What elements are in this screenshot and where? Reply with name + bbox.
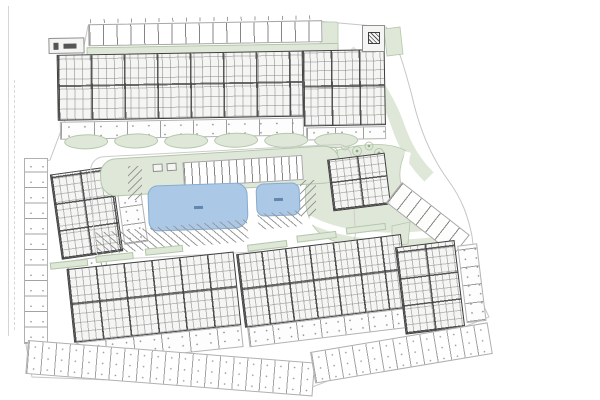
site-plan-canvas [0, 0, 600, 400]
west-plot-strip [24, 158, 48, 344]
green-strip [145, 245, 184, 256]
utility-kiosk [362, 25, 385, 52]
north-block-east-wing [302, 49, 386, 126]
frame-line-left [8, 6, 9, 336]
dimension-line-left [14, 80, 15, 330]
clubhouse-building [327, 153, 391, 212]
hatched-parking-east [300, 180, 316, 216]
green-strip [95, 252, 134, 263]
green-strip [296, 231, 337, 243]
hatched-parking-west [128, 166, 142, 200]
south-complex [226, 215, 418, 346]
green-strip [346, 223, 387, 235]
hedge-mound [164, 133, 208, 149]
hedge-mound [114, 133, 158, 149]
hedge-mound [64, 134, 108, 150]
entrance-kiosk [48, 37, 84, 54]
sign-box [152, 164, 162, 173]
north-block-building [57, 50, 308, 120]
north-complex [46, 12, 393, 158]
kiosk-room [53, 43, 58, 50]
southeast-block [392, 233, 489, 339]
hedge-mound [214, 132, 258, 148]
kiosk-room [63, 43, 76, 48]
sign-box [166, 163, 176, 172]
transformer-box [368, 32, 380, 44]
southeast-building [395, 240, 465, 335]
street-parking-row [88, 20, 322, 46]
